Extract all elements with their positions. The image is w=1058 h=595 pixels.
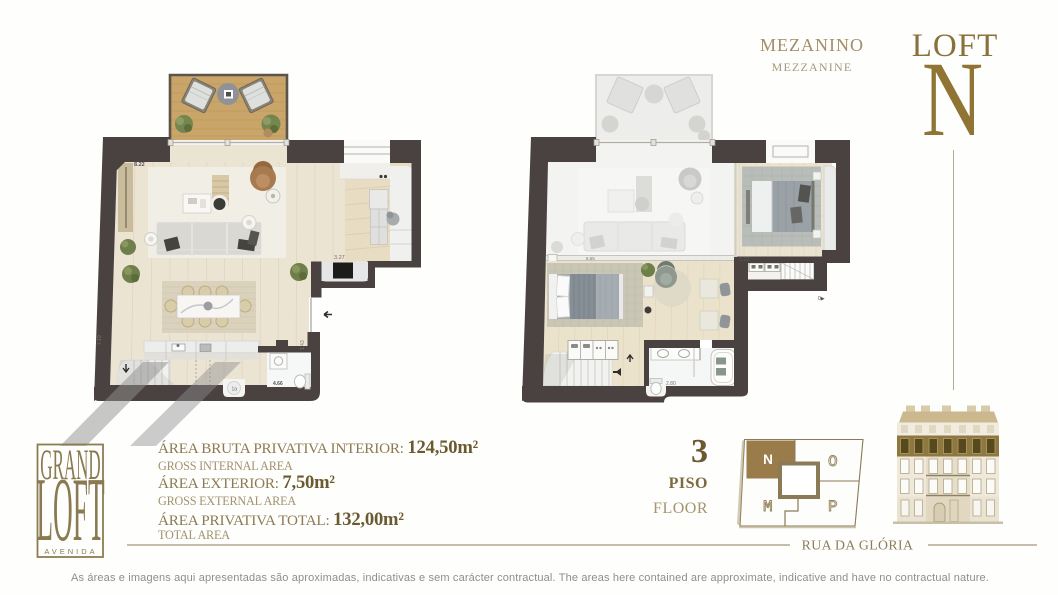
svg-text:P: P (828, 498, 838, 516)
svg-text:AVENIDA: AVENIDA (44, 547, 97, 556)
svg-text:6.65: 6.65 (586, 256, 595, 261)
svg-text:3.22: 3.22 (739, 257, 750, 263)
svg-text:RUA DA GLÓRIA: RUA DA GLÓRIA (802, 537, 914, 553)
svg-text:MEZANINO: MEZANINO (760, 35, 864, 55)
svg-text:2.80: 2.80 (666, 381, 676, 387)
svg-text:O: O (828, 453, 838, 471)
svg-text:N: N (922, 40, 983, 159)
svg-text:ÁREA BRUTA PRIVATIVA INTERIOR:: ÁREA BRUTA PRIVATIVA INTERIOR: 124,50m² (158, 437, 479, 458)
svg-text:LOFT: LOFT (36, 459, 104, 561)
svg-text:N: N (763, 452, 773, 467)
svg-text:0▶: 0▶ (818, 296, 825, 302)
svg-text:GROSS INTERNAL AREA: GROSS INTERNAL AREA (158, 459, 293, 473)
svg-text:TOTAL AREA: TOTAL AREA (158, 528, 230, 542)
svg-text:3: 3 (691, 433, 708, 470)
svg-text:GROSS EXTERNAL AREA: GROSS EXTERNAL AREA (158, 494, 296, 508)
svg-text:ÁREA EXTERIOR: 7,50m²: ÁREA EXTERIOR: 7,50m² (158, 472, 335, 493)
svg-text:1.43: 1.43 (300, 340, 306, 350)
svg-text:7.19: 7.19 (97, 335, 103, 345)
svg-text:FLOOR: FLOOR (653, 500, 708, 517)
svg-text:As áreas e imagens aqui aprese: As áreas e imagens aqui apresentadas são… (71, 572, 989, 584)
svg-text:4.66: 4.66 (273, 381, 283, 387)
svg-text:ÁREA PRIVATIVA TOTAL: 132,00m²: ÁREA PRIVATIVA TOTAL: 132,00m² (158, 509, 404, 530)
svg-text:3.27: 3.27 (334, 255, 345, 261)
svg-text:M: M (763, 498, 773, 516)
svg-text:8.22: 8.22 (134, 162, 145, 168)
svg-text:MEZZANINE: MEZZANINE (772, 60, 853, 74)
svg-text:PISO: PISO (669, 475, 708, 492)
svg-text:1a: 1a (232, 387, 238, 393)
